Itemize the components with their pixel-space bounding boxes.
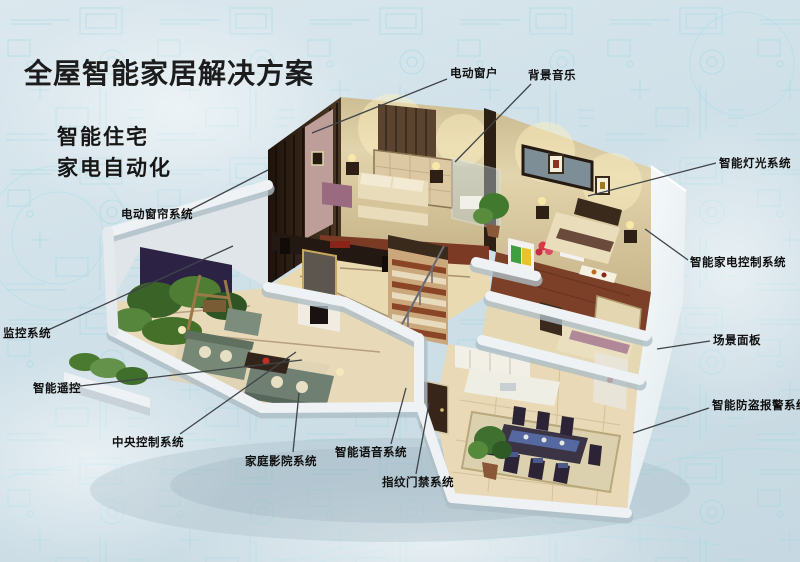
bedside-lamp [626,221,634,229]
nightstand [536,206,549,219]
sink [500,383,516,391]
floor-lamp [336,368,344,376]
nightstand [430,170,443,183]
bedside-lamp [538,197,546,205]
callout-smart-remote-control: 智能遥控 [33,380,81,396]
smart-home-poster: 全屋智能家居解决方案 智能住宅 家电自动化 电动窗户 背景音乐 智能灯光系统 智… [0,0,800,562]
callout-smart-burglar-alarm-system: 智能防盗报警系统 [712,397,800,413]
accent-wall [305,109,333,239]
plant-pot [486,224,500,238]
bed-bench [322,182,352,208]
callout-electric-window: 电动窗户 [450,65,498,81]
callout-central-control-system: 中央控制系统 [112,434,184,450]
callout-smart-lighting-system: 智能灯光系统 [719,155,791,171]
wall-picture [312,152,323,165]
bedside-lamp [348,154,356,162]
floor-lamp [178,326,186,334]
callout-fingerprint-access-system: 指纹门禁系统 [382,474,454,490]
callout-background-music: 背景音乐 [528,67,576,83]
speaker [280,238,290,254]
bedside-lamp [432,162,440,170]
page-title: 全屋智能家居解决方案 [24,52,314,92]
nightstand [624,230,637,243]
callout-electric-curtain-system: 电动窗帘系统 [121,206,193,222]
subtitle-smart-residence: 智能住宅 [57,121,149,151]
callout-home-theater-system: 家庭影院系统 [245,453,317,469]
nightstand [346,162,359,175]
callout-monitoring-system: 监控系统 [3,325,51,341]
callout-scene-panel: 场景面板 [713,332,761,348]
subtitle-appliance-automation: 家电自动化 [57,152,172,182]
callout-smart-voice-system: 智能语音系统 [335,444,407,460]
callout-smart-appliance-control-system: 智能家电控制系统 [690,254,786,270]
